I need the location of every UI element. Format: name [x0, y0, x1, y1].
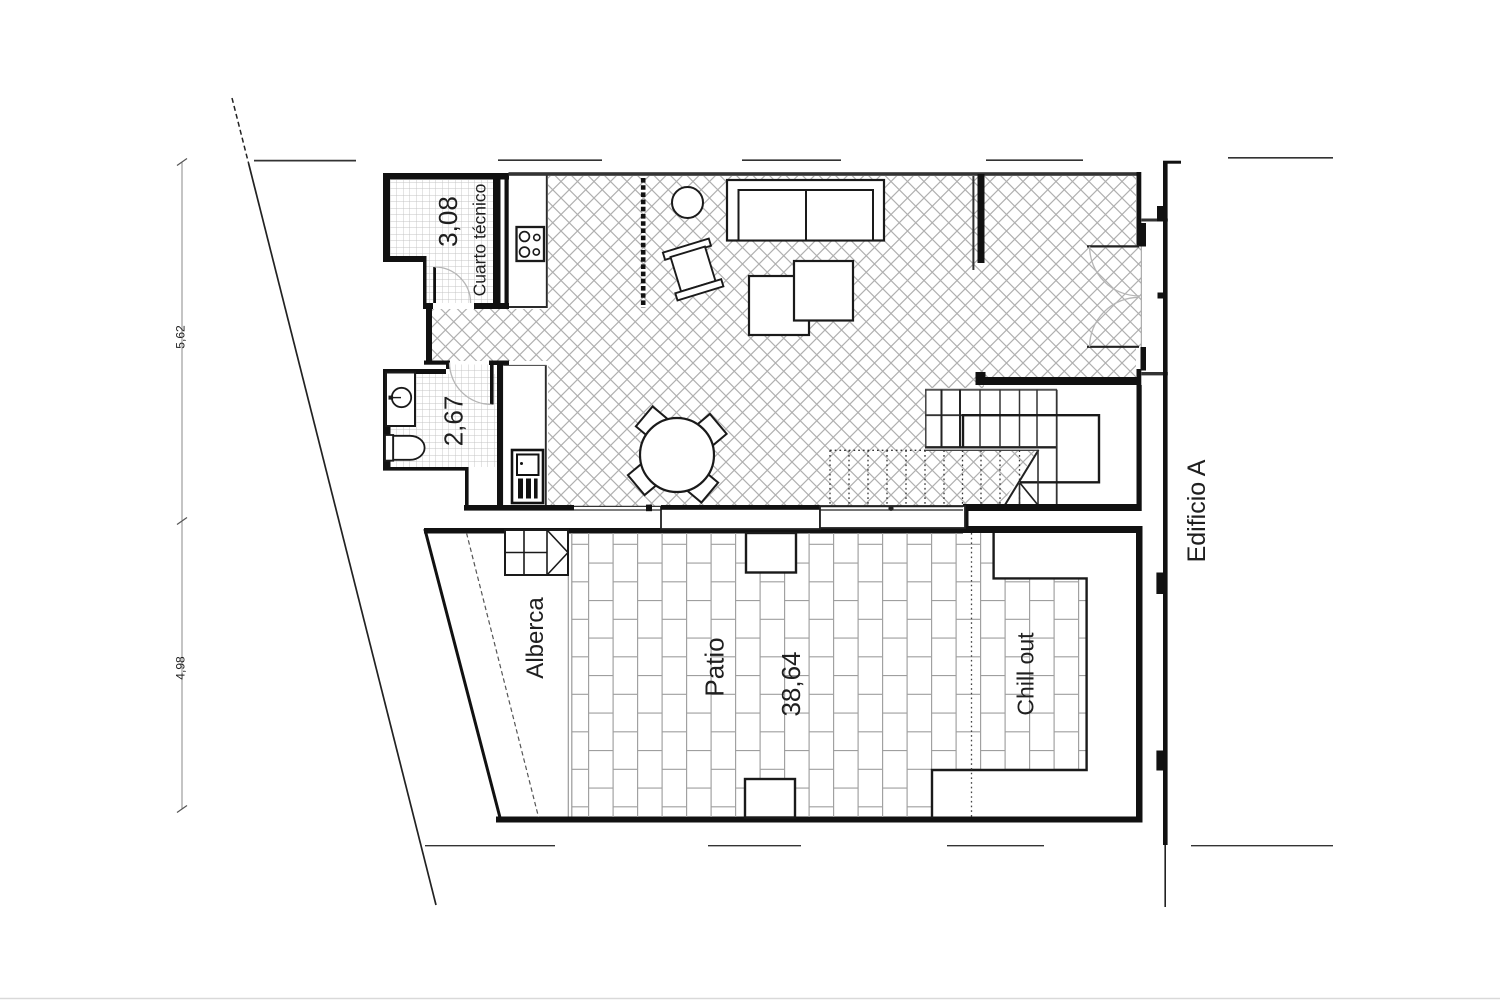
svg-text:2,67: 2,67 [439, 396, 469, 447]
svg-text:Edificio A: Edificio A [1183, 459, 1211, 562]
svg-text:Chill out: Chill out [1013, 632, 1039, 716]
svg-text:3,08: 3,08 [433, 196, 463, 247]
svg-text:Alberca: Alberca [522, 597, 549, 679]
svg-text:38,64: 38,64 [776, 651, 806, 716]
svg-text:Patio: Patio [700, 637, 730, 696]
svg-text:4,98: 4,98 [174, 656, 188, 680]
svg-text:5,62: 5,62 [174, 325, 188, 349]
svg-text:Cuarto técnico: Cuarto técnico [470, 184, 490, 297]
